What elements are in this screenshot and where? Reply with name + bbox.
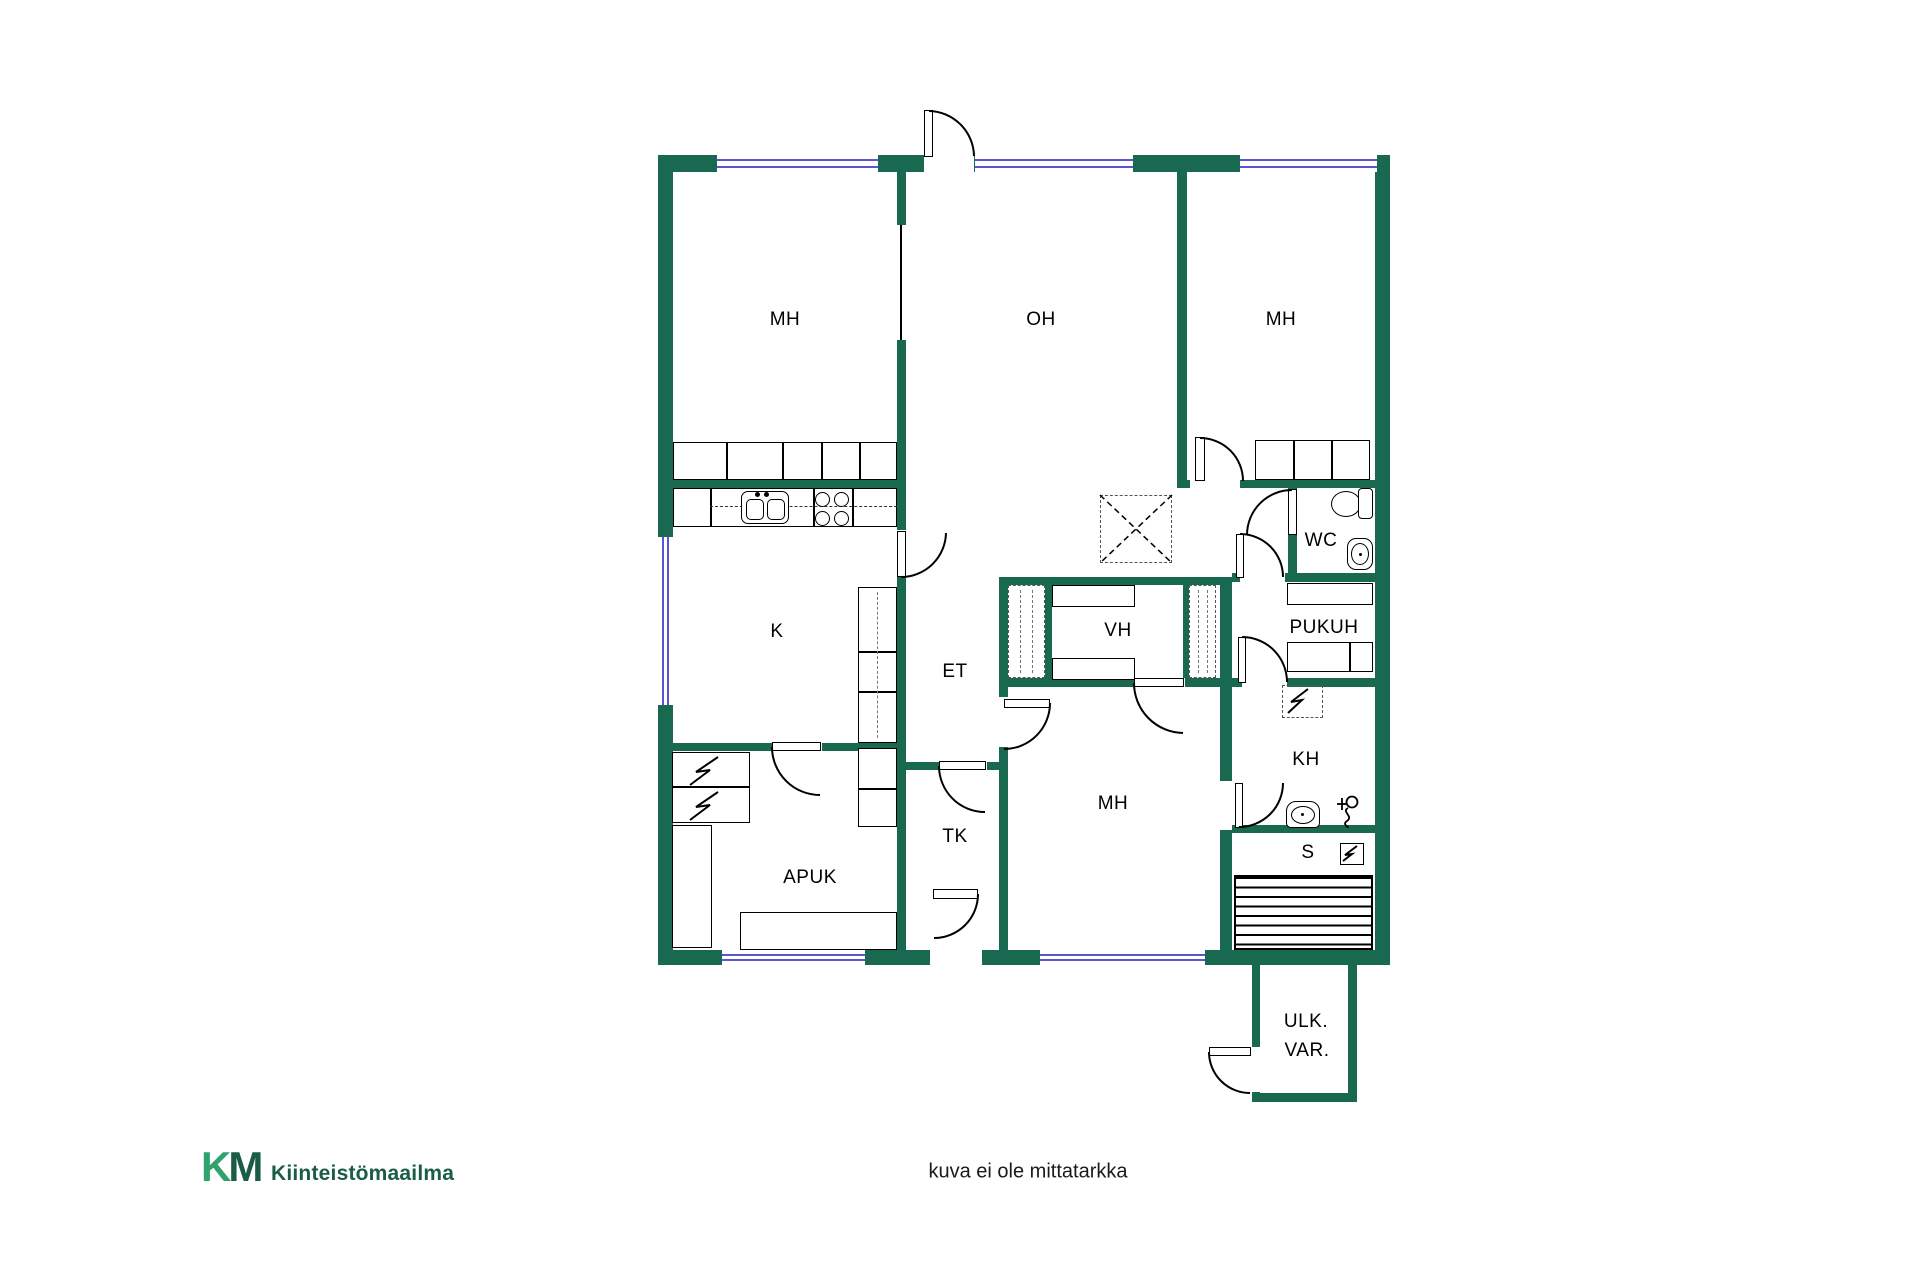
room-label-var: VAR. — [1285, 1040, 1330, 1062]
door-leaf — [933, 889, 978, 899]
km-logo: KM — [201, 1143, 260, 1191]
brand-name: Kiinteistömaailma — [271, 1162, 454, 1186]
electrical-zigzag-icons — [690, 689, 1357, 861]
cabinet-column-k — [858, 587, 897, 743]
chimney-icon — [1100, 495, 1172, 563]
window-mh-bottom — [1040, 950, 1205, 965]
water-heater-dashed-icon — [1282, 685, 1323, 718]
closet-row-mh-right — [1255, 440, 1370, 480]
stove-burner-icon — [815, 511, 830, 526]
wall-mh-oh — [897, 340, 906, 480]
drain-dot — [1301, 813, 1304, 816]
door-opening-tk-exterior — [930, 950, 982, 965]
water-heater-icon — [672, 752, 750, 787]
wardrobe-dashed — [1189, 585, 1216, 678]
wall-vh-top — [1002, 577, 1232, 585]
door-leaf — [1236, 534, 1244, 578]
wall-right — [1375, 155, 1390, 965]
sauna-stove-icon — [1340, 843, 1364, 865]
door-opening-kh — [1220, 781, 1232, 830]
door-leaf — [1288, 489, 1297, 535]
vh-shelf — [1052, 585, 1135, 607]
sink-basin-left — [746, 499, 764, 520]
room-label-kh: KH — [1292, 749, 1319, 771]
window-k — [658, 537, 673, 705]
window-apuk — [722, 950, 865, 965]
wall-mh-oh-thin — [900, 225, 902, 340]
km-logo-k: K — [201, 1143, 228, 1190]
wall-oh-mh-right — [1177, 172, 1187, 480]
apuk-bench — [740, 912, 897, 950]
room-label-vh: VH — [1104, 620, 1131, 642]
drain-dot — [1359, 553, 1362, 556]
faucet-dot — [755, 492, 760, 497]
cabinet-column-apuk — [858, 748, 897, 827]
counter-dashed-line — [710, 506, 897, 507]
door-opening-hall-pukuh — [1240, 573, 1285, 582]
window-mh-top-right — [1240, 155, 1377, 172]
toilet-icon — [1331, 491, 1361, 517]
shower-mixer-icon — [1337, 797, 1358, 828]
door-opening-mh-right — [1190, 480, 1240, 488]
window-mh-top-left — [717, 155, 878, 172]
sink-basin-right — [767, 499, 785, 520]
wall-k-et-upper — [897, 488, 906, 530]
room-label-ulk: ULK. — [1284, 1011, 1328, 1033]
door-opening-pukuh — [1242, 678, 1287, 687]
door-opening-entry — [924, 155, 974, 172]
room-label-oh: OH — [1026, 309, 1056, 331]
disclaimer-text: kuva ei ole mittatarkka — [929, 1161, 1128, 1184]
wall-mh-oh-stub — [897, 172, 906, 225]
door-opening-ulkvar — [1252, 1047, 1260, 1092]
door-leaf — [1195, 437, 1205, 481]
toilet-tank — [1358, 488, 1373, 519]
door-leaf — [939, 761, 986, 770]
vh-shelf — [1052, 658, 1135, 680]
km-logo-m: M — [228, 1143, 260, 1190]
sauna-benches — [1234, 875, 1373, 950]
water-heater-icon — [672, 787, 750, 823]
wardrobe-dashed — [1008, 585, 1045, 678]
stove-burner-icon — [815, 492, 830, 507]
pukuh-bench — [1287, 642, 1373, 672]
room-label-pukuh: PUKUH — [1289, 617, 1358, 639]
room-label-wc: WC — [1305, 530, 1338, 552]
closet-row-mh-left — [673, 442, 897, 480]
door-leaf — [1209, 1047, 1251, 1056]
room-label-s: S — [1301, 842, 1314, 864]
room-label-apuk: APUK — [783, 867, 837, 889]
wall-ulkvar-bottom — [1252, 1093, 1357, 1102]
pukuh-shelf — [1287, 583, 1373, 605]
plan-linework — [0, 0, 1920, 1280]
room-label-tk: TK — [942, 826, 967, 848]
door-leaf — [897, 531, 906, 577]
door-leaf — [924, 110, 933, 157]
window-oh — [975, 155, 1133, 172]
wall-ulkvar-right — [1348, 965, 1357, 1102]
door-leaf — [1238, 637, 1246, 683]
room-label-mh-top-right: MH — [1266, 309, 1297, 331]
door-leaf — [1235, 783, 1243, 828]
stove-burner-icon — [834, 511, 849, 526]
wall-mh-kitchen — [673, 480, 906, 488]
room-label-et: ET — [942, 661, 967, 683]
room-label-k: K — [770, 621, 783, 643]
apuk-counter — [672, 825, 712, 948]
floor-plan: MH OH MH WC K ET VH PUKUH KH S TK MH APU… — [0, 0, 1920, 1280]
door-leaf — [1134, 678, 1184, 687]
room-label-mh-top-left: MH — [770, 309, 801, 331]
door-leaf — [772, 742, 821, 751]
stove-burner-icon — [834, 492, 849, 507]
wall-mh-kh — [1220, 577, 1232, 950]
wall-vh-left-sep — [1045, 585, 1052, 678]
door-leaf — [1004, 699, 1050, 708]
faucet-dot — [764, 492, 769, 497]
room-label-mh-bottom: MH — [1098, 793, 1129, 815]
